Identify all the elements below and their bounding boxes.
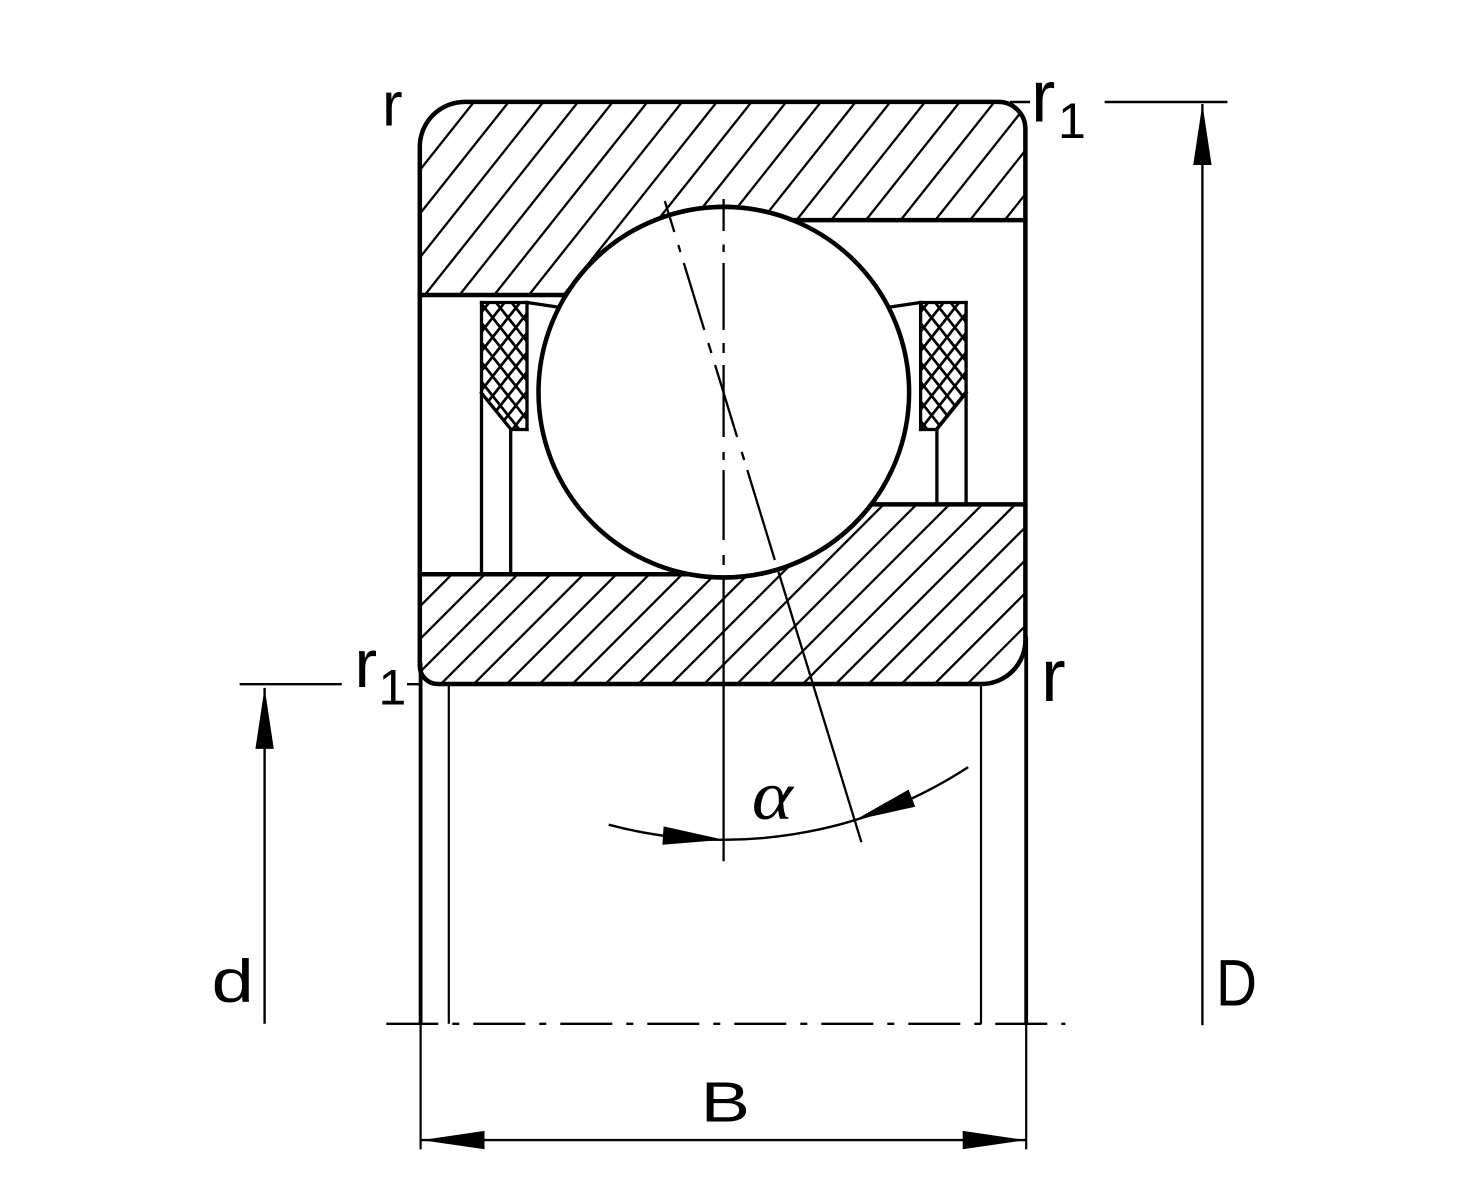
svg-text:r: r (1041, 634, 1066, 717)
svg-text:r: r (382, 71, 403, 140)
svg-text:1: 1 (379, 660, 407, 716)
svg-text:B: B (701, 1071, 750, 1135)
svg-text:r: r (355, 626, 378, 702)
svg-text:d: d (211, 947, 253, 1014)
svg-text:D: D (1216, 946, 1257, 1020)
svg-text:1: 1 (1058, 93, 1086, 149)
svg-text:α: α (752, 758, 795, 835)
svg-text:r: r (1031, 56, 1055, 137)
